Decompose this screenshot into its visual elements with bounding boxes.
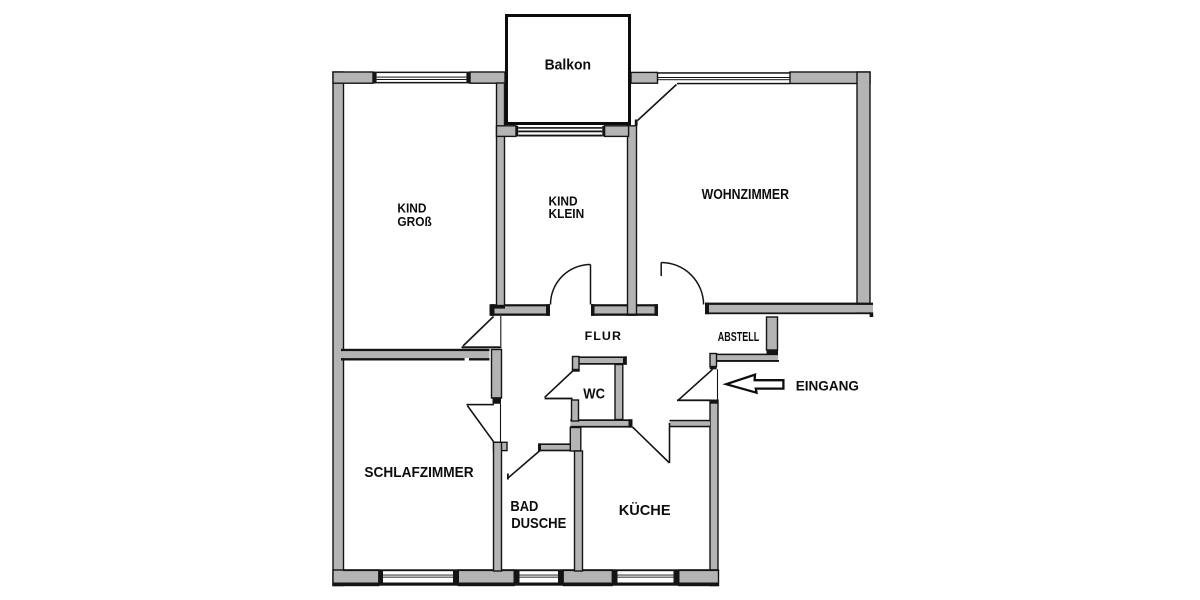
svg-text:Balkon: Balkon [545, 57, 591, 74]
svg-text:FLUR: FLUR [585, 329, 622, 343]
svg-text:GROß: GROß [397, 215, 432, 229]
svg-text:BAD: BAD [510, 497, 538, 514]
svg-text:EINGANG: EINGANG [796, 377, 859, 393]
svg-text:SCHLAFZIMMER: SCHLAFZIMMER [364, 464, 474, 481]
svg-text:KÜCHE: KÜCHE [619, 502, 671, 519]
svg-text:WOHNZIMMER: WOHNZIMMER [702, 186, 790, 202]
svg-text:ABSTELL: ABSTELL [718, 331, 760, 345]
svg-text:DUSCHE: DUSCHE [511, 515, 566, 532]
svg-text:WC: WC [583, 384, 605, 401]
svg-text:KLEIN: KLEIN [549, 207, 585, 221]
